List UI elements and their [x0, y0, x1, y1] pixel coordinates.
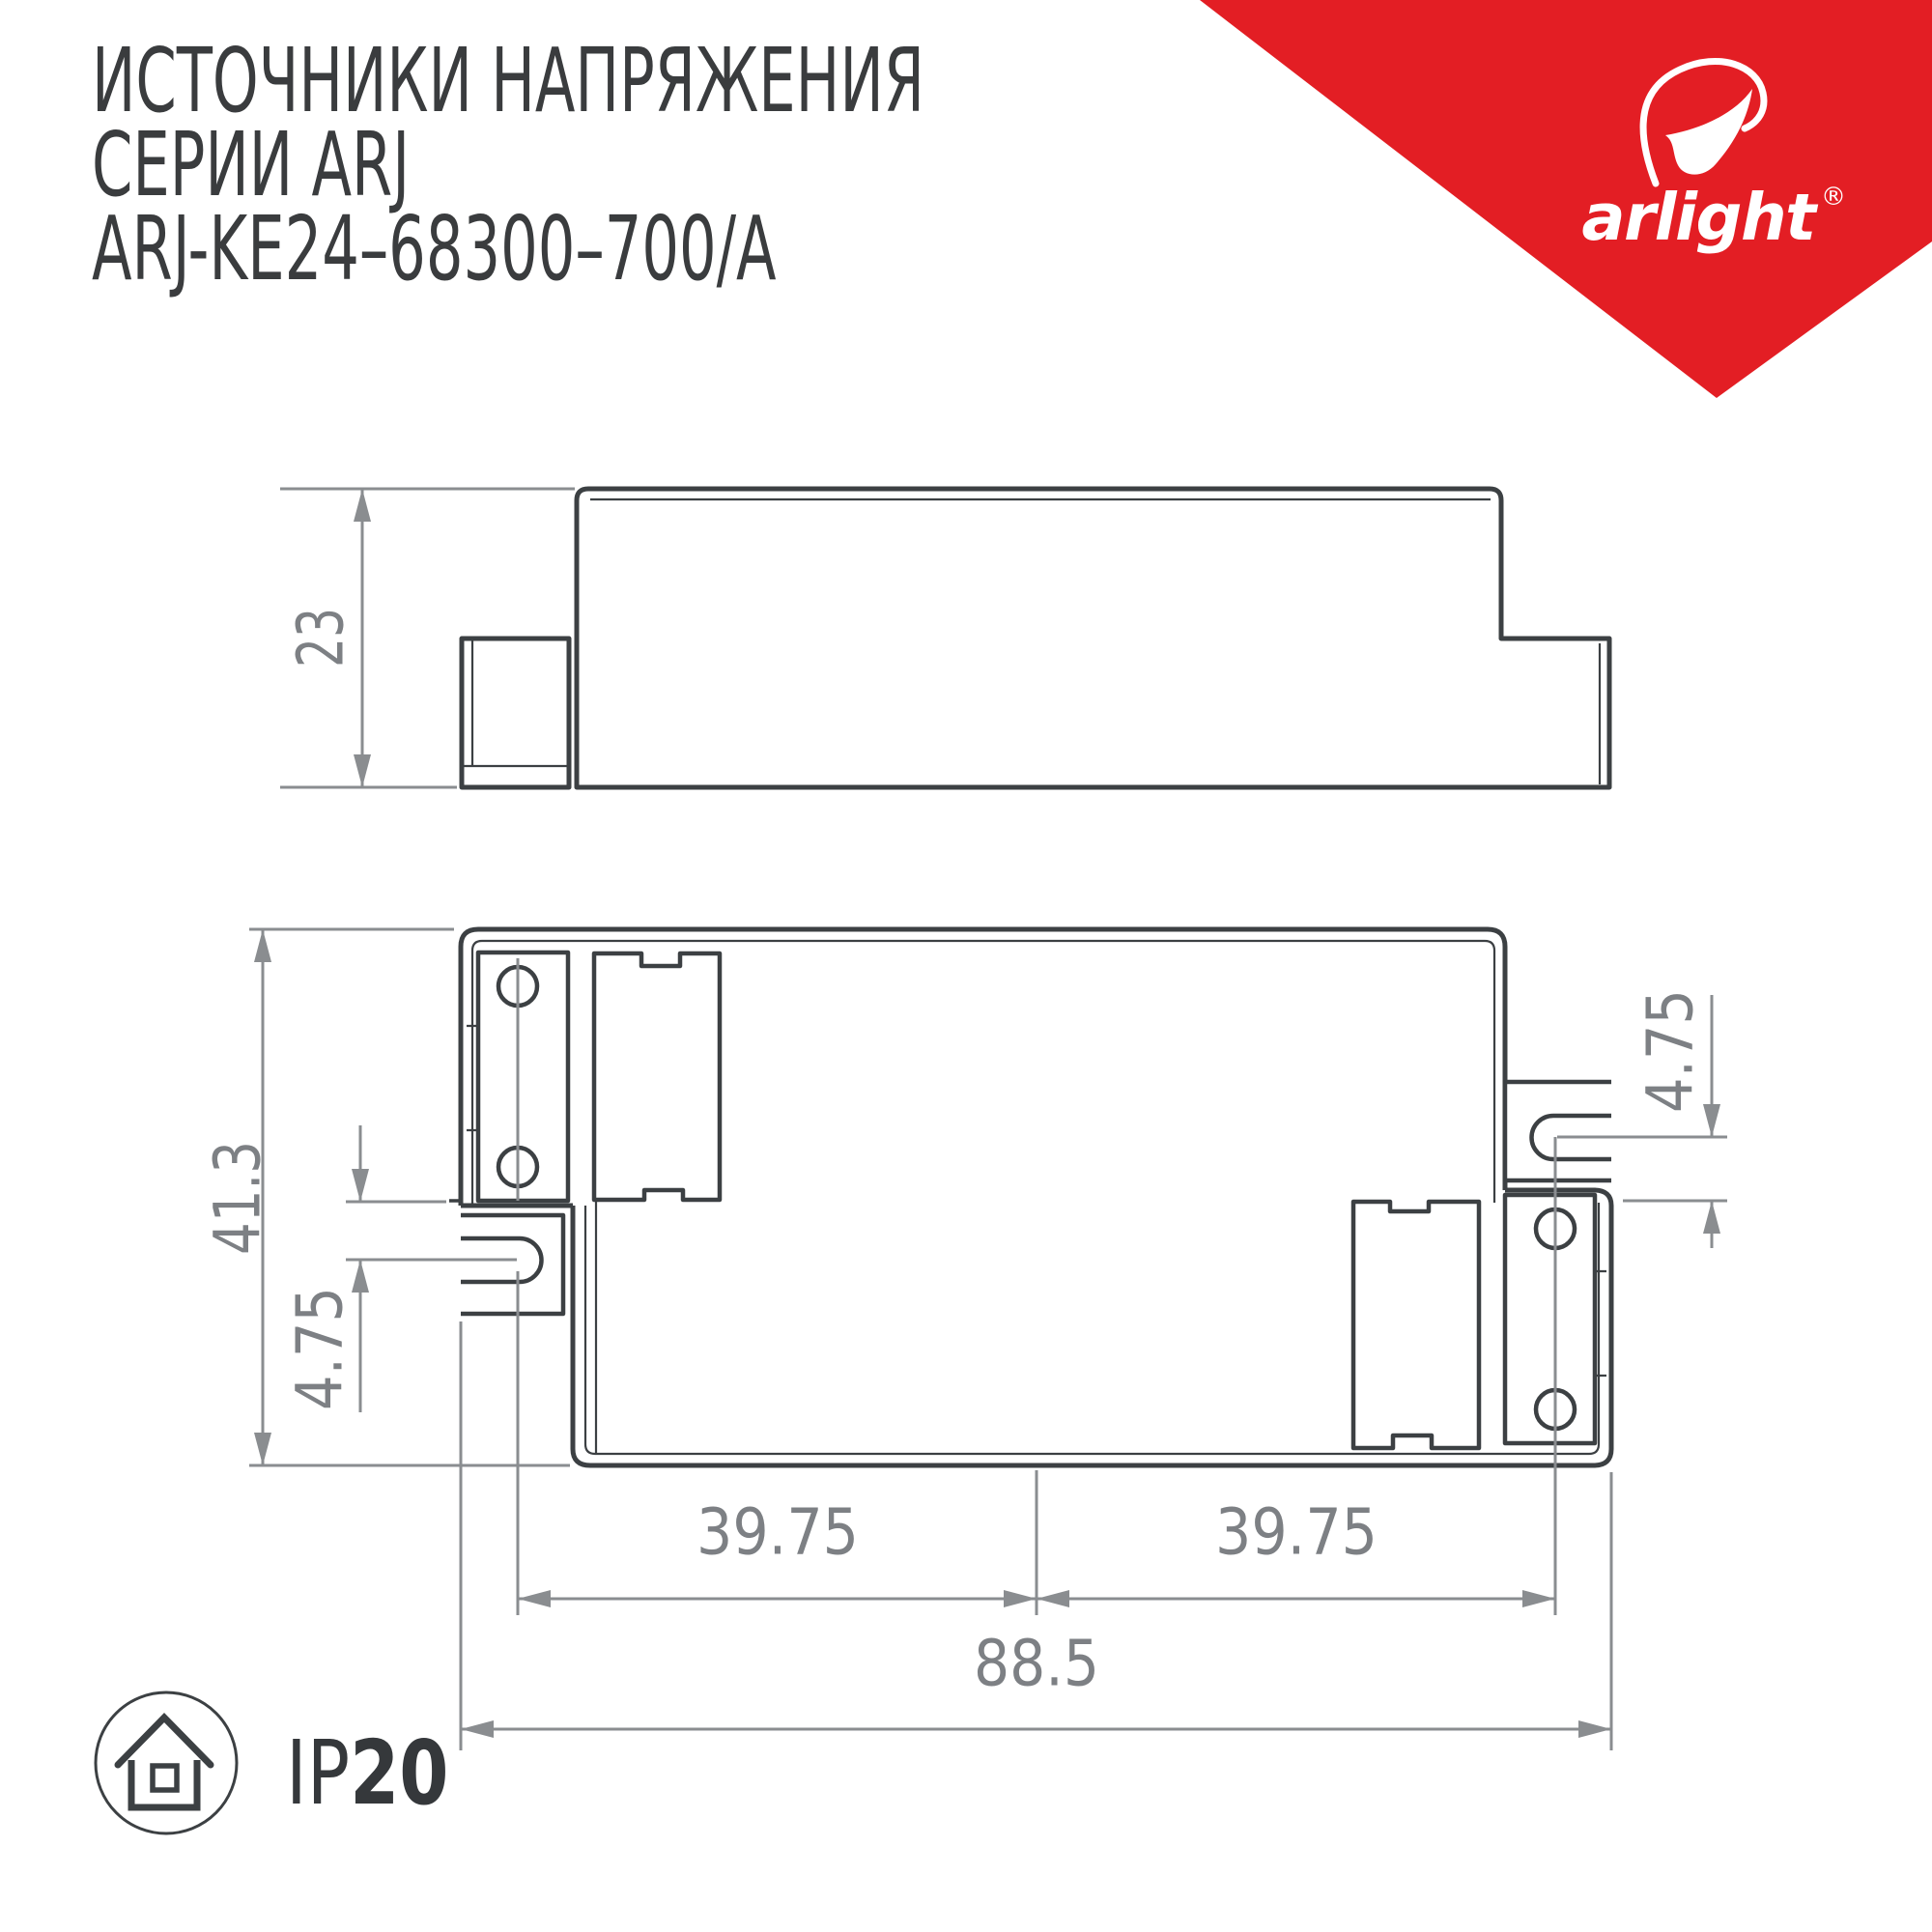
technical-drawing: arlight ® 23	[0, 0, 1932, 1932]
dimension-39-75-left: 39.75	[518, 1495, 1037, 1608]
ip-rating: IP20	[286, 1729, 449, 1818]
right-mounting-flange	[1505, 1082, 1611, 1180]
dim-4-75L-label: 4.75	[283, 1287, 357, 1410]
dim-88-5-arrow-left	[461, 1720, 494, 1738]
dim-39-75R-arrow-left	[1037, 1590, 1069, 1607]
top-view-drawing	[449, 929, 1611, 1465]
right-mounting-bracket	[1505, 1195, 1595, 1443]
side-view-body-outline	[577, 489, 1609, 787]
dim-4-75R-label: 4.75	[1634, 989, 1708, 1113]
dim-41-3-arrow-top	[254, 929, 271, 962]
house-window	[153, 1766, 177, 1790]
dim-39-75L-label: 39.75	[696, 1495, 859, 1570]
ip-value: 20	[350, 1721, 448, 1825]
right-terminal-block	[1353, 1202, 1479, 1448]
dim-41-3-arrow-bottom	[254, 1433, 271, 1465]
dimension-88-5: 88.5	[461, 1627, 1611, 1739]
dim-4-75L-arrow-down	[352, 1169, 369, 1202]
dim-39-75L-arrow-left	[518, 1590, 551, 1607]
house-roof	[118, 1718, 211, 1765]
ip-prefix: IP	[286, 1721, 350, 1825]
dim-39-75R-label: 39.75	[1215, 1495, 1378, 1570]
dim-88-5-arrow-right	[1578, 1720, 1611, 1738]
side-view-drawing	[462, 489, 1609, 787]
arlight-logo: arlight ®	[1200, 0, 1932, 398]
dimension-39-75-right: 39.75	[1037, 1495, 1555, 1608]
logo-registered-mark: ®	[1821, 183, 1846, 212]
left-mounting-bracket	[478, 952, 568, 1201]
dim-39-75L-arrow-right	[1004, 1590, 1037, 1607]
ip20-badge-icon	[96, 1692, 237, 1833]
left-terminal-block	[594, 953, 720, 1200]
dim-23-arrow-bottom	[354, 754, 371, 787]
logo-wordmark: arlight	[1581, 180, 1819, 255]
left-mounting-flange	[461, 1215, 563, 1314]
dim-41-3-label: 41.3	[201, 1141, 275, 1255]
dim-4-75R-arrow-up	[1703, 1201, 1720, 1234]
dim-88-5-label: 88.5	[974, 1627, 1099, 1701]
dim-23-label: 23	[284, 608, 358, 668]
dim-39-75R-arrow-right	[1522, 1590, 1555, 1607]
indoor-house-icon	[118, 1718, 211, 1807]
dim-23-arrow-top	[354, 489, 371, 522]
